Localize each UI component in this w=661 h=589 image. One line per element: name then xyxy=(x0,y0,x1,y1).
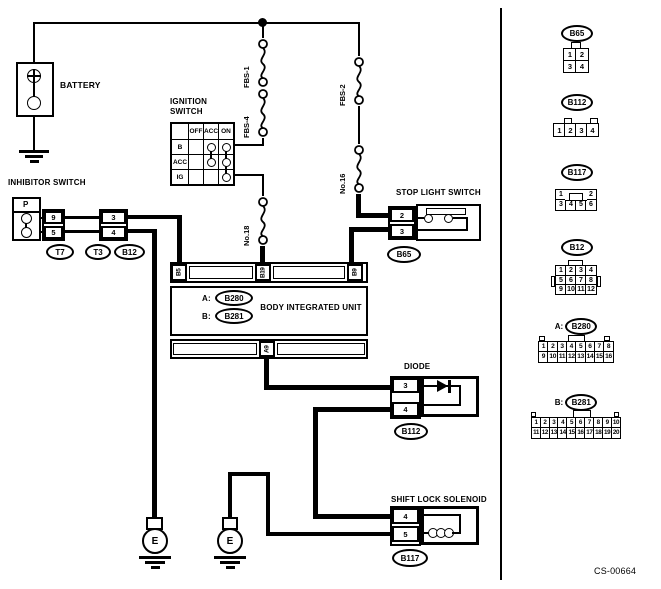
biu-a-prefix: A: xyxy=(202,294,211,303)
wire-pin5-pin4 xyxy=(65,230,99,233)
fuse-fbs1-icon xyxy=(255,38,271,93)
connector-pin-cell: 16 xyxy=(603,351,614,363)
wire-ground2-link xyxy=(228,472,270,476)
wire-b-row-link xyxy=(233,144,264,146)
battery-plus-v xyxy=(33,69,35,83)
biu-b-prefix: B: xyxy=(202,312,211,321)
diode-symbol-icon xyxy=(437,380,448,392)
connector-b281-id: B281 xyxy=(565,394,597,411)
diode-pin-3: 3 xyxy=(392,378,419,393)
biu-title: BODY INTEGRATED UNIT xyxy=(255,303,367,312)
inhibitor-switch-label: INHIBITOR SWITCH xyxy=(8,178,86,187)
panel-connector-b65: B65 1234 xyxy=(544,25,608,73)
ground-left-line2 xyxy=(145,561,165,564)
ignition-column-header: ON xyxy=(218,124,233,139)
ignition-row-label: B xyxy=(172,139,188,154)
battery-negative-terminal-icon xyxy=(27,96,41,110)
ignition-row-label: IG xyxy=(172,169,188,184)
biu-pin-a9: A9 xyxy=(259,341,275,357)
inhibitor-contact2-icon xyxy=(21,227,32,238)
connector-b117-pinout: 123456 xyxy=(555,189,597,211)
solenoid-wire-right xyxy=(459,514,461,534)
connector-t3-badge: T3 xyxy=(85,244,111,260)
fuse-fbs4-label: FBS-4 xyxy=(242,90,251,138)
diode-label: DIODE xyxy=(404,362,430,371)
biu-pin-b19: B19 xyxy=(255,264,271,281)
connector-side-clip xyxy=(551,276,555,287)
connector-b280-id: B280 xyxy=(565,318,597,335)
inhibitor-pin-5: 5 xyxy=(44,226,63,239)
ignition-contact-icon xyxy=(222,158,231,167)
battery-stem xyxy=(33,83,35,97)
wire-top-bus xyxy=(33,22,360,24)
fuse-fbs4-icon xyxy=(255,88,271,143)
panel-connector-b281: B:B281 1234567891011121314151617181920 xyxy=(524,394,628,439)
connector-b112-id: B112 xyxy=(561,94,593,111)
ignition-contact-cell xyxy=(203,139,218,154)
solenoid-wire-mid xyxy=(452,532,461,534)
solenoid-pin-4: 4 xyxy=(392,508,419,524)
wire-solenoid-pin5-out xyxy=(266,532,394,536)
fuse-no16-label: No.16 xyxy=(338,146,347,194)
ignition-contact-icon xyxy=(207,158,216,167)
connector-prefix: B: xyxy=(555,398,563,407)
connector-tab xyxy=(568,335,585,341)
wire-ground2-down xyxy=(228,472,232,517)
stoplight-wire-d xyxy=(414,229,468,231)
connector-corner-tab xyxy=(539,336,545,341)
connector-corner-tab xyxy=(531,412,536,417)
ignition-contact-cell xyxy=(218,139,233,154)
stop-light-switch-label: STOP LIGHT SWITCH xyxy=(396,188,481,197)
wire-diode-pin4-out xyxy=(313,407,394,412)
connector-b280-pinout: 12345678910111213141516 xyxy=(538,341,614,363)
connector-side-clip xyxy=(597,276,601,287)
diode-wire-bottom xyxy=(421,404,461,406)
shift-lock-solenoid-label: SHIFT LOCK SOLENOID xyxy=(391,495,487,504)
connector-b112-badge: B112 xyxy=(394,423,428,440)
biu-bottom-segment1 xyxy=(173,343,257,355)
solenoid-wire-top xyxy=(421,514,461,516)
diode-pin-4: 4 xyxy=(392,402,419,417)
stoplight-contact2-icon xyxy=(444,214,453,223)
stoplight-contact1-icon xyxy=(424,214,433,223)
ignition-contact-icon xyxy=(222,143,231,152)
connector-tab xyxy=(571,42,581,48)
connector-b65-pinout: 1234 xyxy=(563,48,589,73)
connector-pin-cell: 4 xyxy=(586,123,599,137)
ignition-contact-cell xyxy=(188,154,203,169)
ignition-contact-icon xyxy=(222,173,231,182)
stoplight-pin-2: 2 xyxy=(390,208,414,222)
panel-divider-line xyxy=(500,8,502,580)
ignition-column-header: ACC xyxy=(203,124,218,139)
ignition-row-label: ACC xyxy=(172,154,188,169)
connector-t7-badge: T7 xyxy=(46,244,74,260)
ground-left-line3 xyxy=(151,566,160,569)
ignition-contact-cell xyxy=(203,169,218,184)
wire-pin3-out xyxy=(128,215,182,219)
wire-to-b9 xyxy=(349,227,354,264)
connector-b12-pinout: 123456789101112 xyxy=(555,265,597,295)
biu-connector-b-badge: B281 xyxy=(215,308,253,324)
connector-tab xyxy=(590,118,598,123)
ignition-contact-cell xyxy=(188,169,203,184)
inhibitor-contact1-icon xyxy=(21,213,32,224)
connector-pin-cell: 6 xyxy=(585,199,597,211)
connector-b117-badge: B117 xyxy=(392,549,428,567)
biu-top-segment1 xyxy=(189,266,253,279)
connector-pin-cell: 4 xyxy=(575,60,589,73)
fuse-no18-icon xyxy=(255,196,271,251)
connector-notch xyxy=(569,193,583,200)
connector-b112-pinout: 1234 xyxy=(553,123,599,137)
ground-left-line1 xyxy=(139,556,171,559)
ground-right-e-icon: E xyxy=(217,528,243,554)
inhibitor-gear-position: P xyxy=(23,200,29,209)
stoplight-wire-a xyxy=(414,217,424,219)
connector-b65-badge: B65 xyxy=(387,246,421,263)
panel-connector-b12: B12 123456789101112 xyxy=(542,239,610,295)
solenoid-body xyxy=(421,506,479,545)
connector-corner-tab xyxy=(604,336,610,341)
wire-a9-to-diode xyxy=(264,385,394,390)
ground-right-line2 xyxy=(220,561,240,564)
wire-solenoid-ground-up xyxy=(266,472,270,536)
biu-bottom-segment2 xyxy=(277,343,365,355)
diagram-code: CS-00664 xyxy=(594,566,636,576)
wire-pin9-pin3 xyxy=(65,216,99,219)
inhibitor-pin-4: 4 xyxy=(101,226,126,239)
biu-pin-b9: B9 xyxy=(347,264,363,281)
fuse-no18-label: No.18 xyxy=(242,198,251,246)
wire-to-b5 xyxy=(177,215,182,264)
fuse-fbs2-icon xyxy=(351,56,367,111)
battery-ground-icon xyxy=(19,150,49,153)
panel-connector-b112: B112 1234 xyxy=(542,94,610,137)
inhibitor-pin-3: 3 xyxy=(101,211,126,224)
wire-to-solenoid-pin4 xyxy=(313,514,394,519)
ignition-contact-cell xyxy=(188,139,203,154)
connector-tab xyxy=(573,410,591,417)
connector-b12-badge: B12 xyxy=(114,244,145,260)
fuse-fbs2-label: FBS-2 xyxy=(338,58,347,106)
stoplight-pin-3: 3 xyxy=(390,224,414,238)
connector-tab xyxy=(568,260,583,265)
ground-right-line1 xyxy=(214,556,246,559)
ground-left-e-icon: E xyxy=(142,528,168,554)
connector-corner-tab xyxy=(614,412,619,417)
biu-top-segment2 xyxy=(273,266,345,279)
wire-ig-out xyxy=(233,174,264,176)
solenoid-pin-5: 5 xyxy=(392,526,419,542)
connector-b281-pinout: 1234567891011121314151617181920 xyxy=(531,417,621,439)
battery-ground-line2 xyxy=(25,155,43,158)
diode-wire-right xyxy=(459,385,461,406)
inhibitor-pin-9: 9 xyxy=(44,211,63,224)
ignition-column-header: OFF xyxy=(188,124,203,139)
junction-dot xyxy=(258,18,267,27)
wiring-diagram: BATTERY FBS-1 FBS-4 No.18 FBS-2 No.16 IG… xyxy=(0,0,661,589)
battery-ground-line3 xyxy=(30,160,39,163)
panel-connector-b117: B117 123456 xyxy=(541,164,611,211)
panel-connector-b280: A:B280 12345678910111213141516 xyxy=(533,318,619,363)
ignition-switch-label: IGNITION SWITCH xyxy=(170,97,207,117)
connector-gap xyxy=(565,189,587,201)
wire-battery-ground xyxy=(33,116,35,150)
wire-to-ground-left xyxy=(152,229,157,517)
diode-bar xyxy=(448,380,451,393)
connector-b65-id: B65 xyxy=(561,25,593,42)
fuse-fbs1-label: FBS-1 xyxy=(242,40,251,88)
biu-pin-b5: B5 xyxy=(171,264,187,281)
ignition-contact-icon xyxy=(207,143,216,152)
wire-battery-up xyxy=(33,22,35,63)
connector-prefix: A: xyxy=(555,322,563,331)
fuse-no16-icon xyxy=(351,144,367,199)
connector-pin-cell: 12 xyxy=(585,284,597,295)
battery-label: BATTERY xyxy=(60,80,101,90)
ignition-switch-table: OFFACCONBACCIG xyxy=(170,122,235,186)
ground-right-line3 xyxy=(226,566,235,569)
connector-b117-id: B117 xyxy=(561,164,593,181)
wire-diode-to-solenoid xyxy=(313,407,318,519)
connector-pin-cell: 20 xyxy=(611,427,621,439)
connector-tab xyxy=(564,118,572,123)
biu-connector-a-badge: B280 xyxy=(215,290,253,306)
connector-b12-id: B12 xyxy=(561,239,593,256)
